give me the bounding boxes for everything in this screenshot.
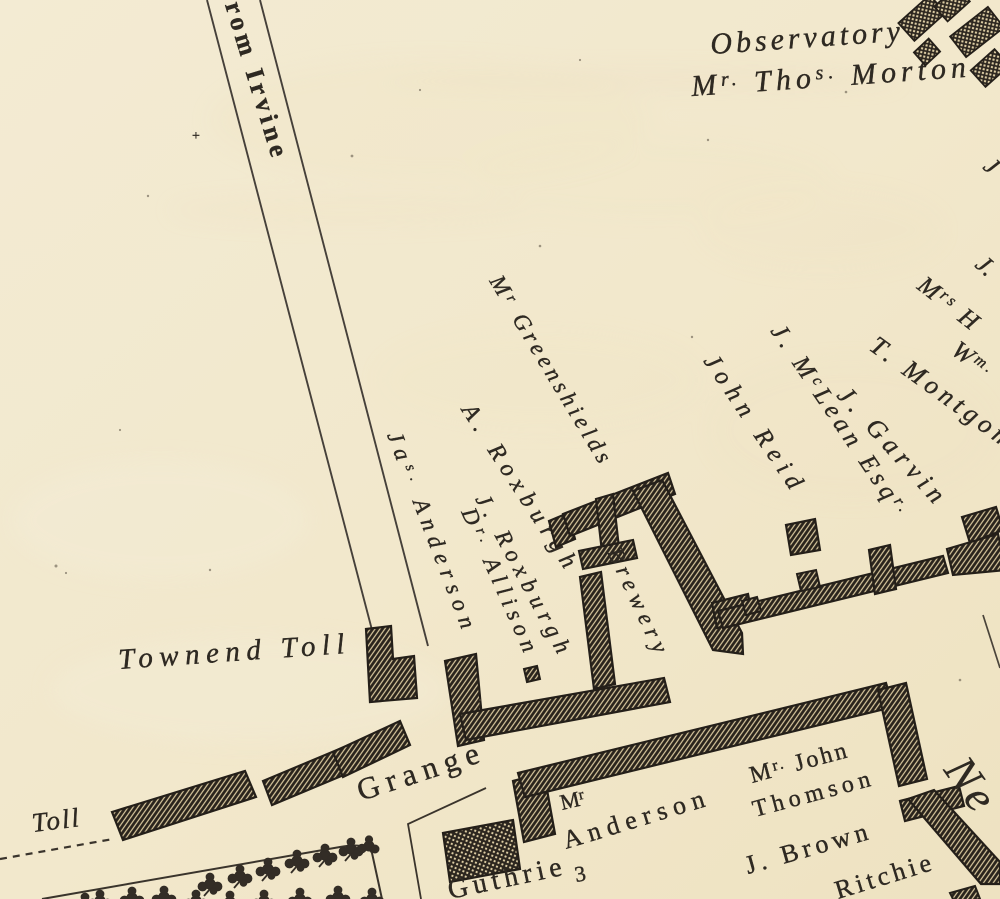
- svg-text:+: +: [192, 129, 200, 144]
- svg-text:Toll: Toll: [30, 802, 82, 838]
